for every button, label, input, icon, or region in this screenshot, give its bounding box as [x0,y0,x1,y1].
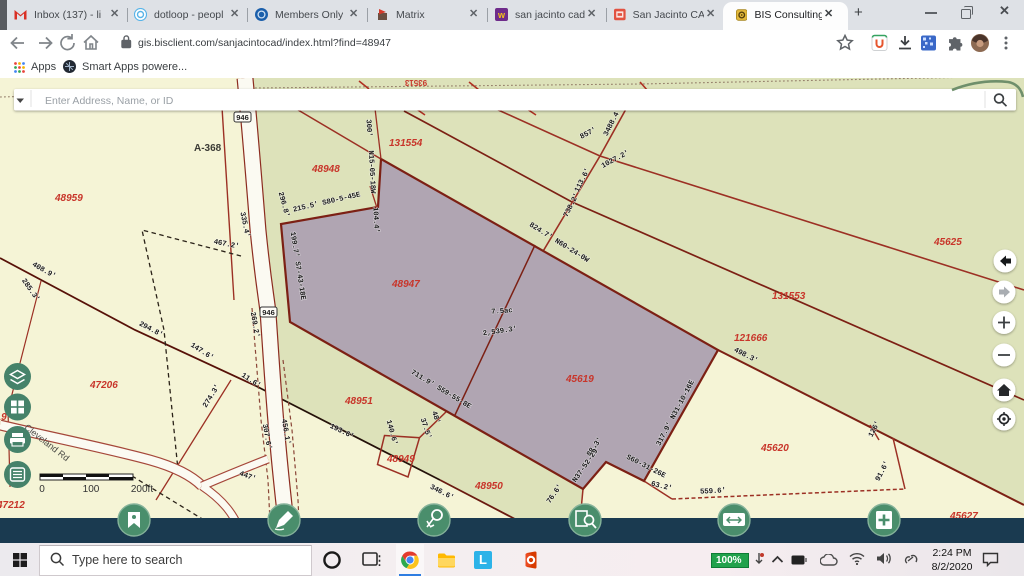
svg-text:559.6': 559.6' [700,487,726,496]
svg-text:131554: 131554 [389,138,423,149]
svg-text:200ft: 200ft [131,484,153,495]
svg-text:48950: 48950 [474,481,503,492]
svg-text:100: 100 [83,484,100,495]
svg-text:104.4': 104.4' [370,207,379,233]
svg-text:946: 946 [262,308,275,317]
svg-text:93513: 93513 [404,78,427,87]
svg-text:45625: 45625 [933,237,962,248]
svg-text:131553: 131553 [772,291,806,302]
svg-text:48959: 48959 [54,193,83,204]
svg-text:45619: 45619 [565,374,594,385]
svg-text:48951: 48951 [344,396,373,407]
svg-text:48947: 48947 [391,279,420,290]
svg-text:0: 0 [39,484,45,495]
svg-text:47206: 47206 [89,380,118,391]
svg-text:48949: 48949 [386,454,415,465]
svg-text:7.5ac: 7.5ac [491,307,514,317]
svg-text:Enter Address, Name, or ID: Enter Address, Name, or ID [45,95,174,107]
svg-text:w: w [497,10,506,20]
svg-text:45620: 45620 [760,443,789,454]
svg-text:47212: 47212 [0,500,25,511]
svg-text:A-368: A-368 [194,143,222,154]
svg-text:48948: 48948 [311,164,340,175]
svg-text:121666: 121666 [734,333,768,344]
svg-text:946: 946 [236,113,249,122]
svg-text:300': 300' [364,119,373,137]
